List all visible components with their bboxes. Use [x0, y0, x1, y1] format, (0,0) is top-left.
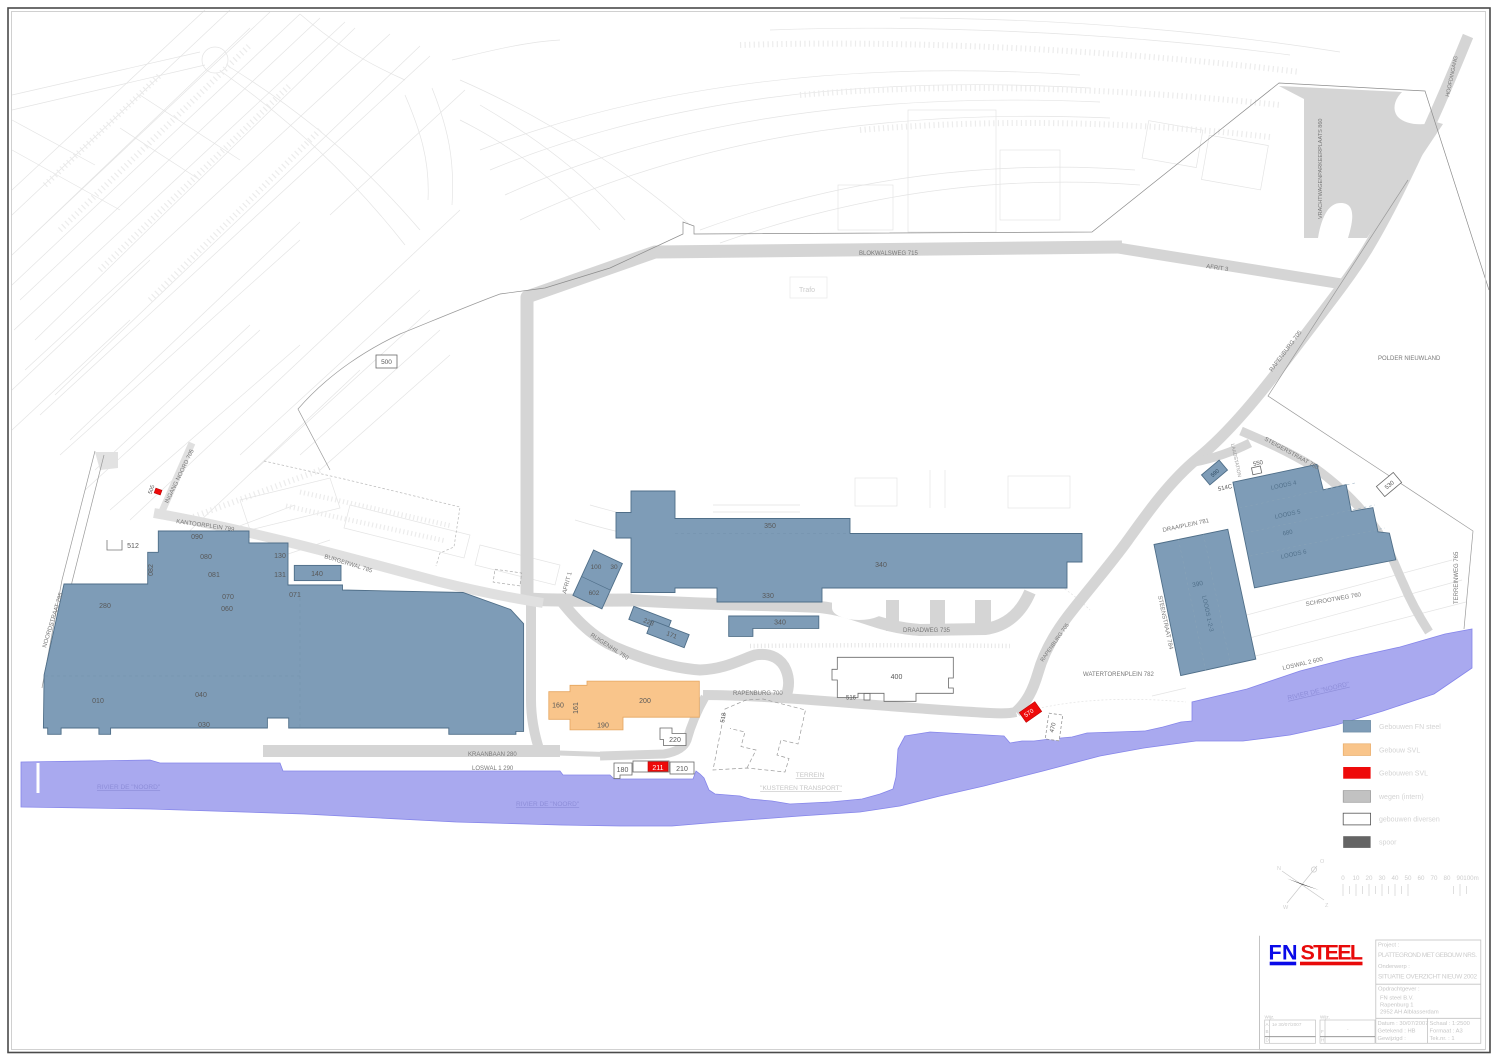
svg-text:Gebouw SVL: Gebouw SVL: [1379, 748, 1420, 755]
svg-text:RIVIER DE "NOORD": RIVIER DE "NOORD": [97, 784, 161, 791]
svg-text:W: W: [1283, 905, 1289, 911]
svg-text:Opdrachtgever :: Opdrachtgever :: [1378, 987, 1420, 993]
svg-text:Trafo: Trafo: [799, 287, 815, 294]
svg-text:FN: FN: [1269, 941, 1298, 965]
svg-text:TERREINWEG 765: TERREINWEG 765: [1454, 551, 1460, 604]
svg-text:100: 100: [591, 564, 602, 571]
svg-text:Rapenburg 1: Rapenburg 1: [1380, 1003, 1414, 1009]
svg-text:RIVIER DE "NOORD": RIVIER DE "NOORD": [516, 801, 580, 808]
svg-text:Project :: Project :: [1378, 943, 1400, 949]
svg-text:200: 200: [639, 698, 651, 705]
svg-text:512: 512: [127, 543, 139, 550]
svg-text:040: 040: [195, 692, 207, 699]
svg-text:H: H: [1321, 1038, 1324, 1043]
svg-text:10: 10: [1353, 875, 1360, 882]
svg-text:wegen (intern): wegen (intern): [1378, 794, 1424, 801]
svg-text:500: 500: [381, 359, 392, 366]
svg-text:060: 060: [221, 606, 233, 613]
svg-text:50: 50: [1405, 875, 1412, 882]
svg-text:100m: 100m: [1463, 875, 1478, 882]
svg-text:0: 0: [1341, 875, 1345, 882]
svg-text:LOSWAL 1 290: LOSWAL 1 290: [472, 766, 514, 772]
svg-text:070: 070: [222, 594, 234, 601]
svg-text:60: 60: [1418, 875, 1425, 882]
svg-text:Onderwerp :: Onderwerp :: [1378, 964, 1410, 970]
svg-text:082: 082: [148, 564, 155, 576]
svg-text:010: 010: [92, 698, 104, 705]
svg-text:210: 210: [676, 766, 688, 773]
svg-text:140: 140: [311, 571, 323, 578]
svg-text:160: 160: [552, 703, 564, 710]
svg-text:350: 350: [764, 523, 776, 530]
svg-text:081: 081: [208, 572, 220, 579]
svg-text:1e 30/07/2007: 1e 30/07/2007: [1272, 1022, 1302, 1027]
svg-text:071: 071: [289, 592, 301, 599]
svg-text:KRAANBAAN 280: KRAANBAAN 280: [468, 752, 517, 758]
svg-text:340: 340: [774, 620, 786, 627]
svg-text:400: 400: [891, 674, 903, 681]
svg-text:090: 090: [191, 534, 203, 541]
svg-text:VRACHTWAGENPARKEERPLAATS 860: VRACHTWAGENPARKEERPLAATS 860: [1318, 119, 1324, 219]
svg-text:Getekend : HB: Getekend : HB: [1378, 1029, 1416, 1035]
svg-text:516: 516: [846, 696, 857, 702]
svg-text:RAPENBURG 700: RAPENBURG 700: [733, 691, 783, 697]
svg-text:Gebouwen FN steel: Gebouwen FN steel: [1379, 724, 1441, 731]
svg-text:Schaal : 1:2500: Schaal : 1:2500: [1430, 1021, 1470, 1027]
svg-text:Wijz.: Wijz.: [1320, 1015, 1330, 1020]
svg-text:Datum : 30/07/2007: Datum : 30/07/2007: [1378, 1021, 1429, 1027]
svg-text:BLOKWALSWEG 715: BLOKWALSWEG 715: [859, 251, 918, 257]
svg-text:SITUATIE OVERZICHT NIEUW 2002: SITUATIE OVERZICHT NIEUW 2002: [1378, 974, 1477, 981]
svg-text:330: 330: [762, 593, 774, 600]
svg-text:130: 130: [274, 553, 286, 560]
svg-text:602: 602: [589, 590, 600, 597]
svg-text:TERREIN: TERREIN: [796, 772, 825, 779]
svg-text:Gewijzigd :: Gewijzigd :: [1378, 1036, 1407, 1042]
svg-text:190: 190: [597, 723, 609, 730]
svg-text:spoor: spoor: [1379, 840, 1397, 847]
svg-text:O: O: [1320, 859, 1325, 865]
svg-text:70: 70: [1431, 875, 1438, 882]
svg-text:161: 161: [573, 702, 580, 714]
svg-text:N: N: [1277, 866, 1281, 872]
svg-text:gebouwen diversen: gebouwen diversen: [1379, 817, 1440, 824]
svg-text:30: 30: [1379, 875, 1386, 882]
svg-text:131: 131: [274, 572, 286, 579]
svg-text:40: 40: [1392, 875, 1399, 882]
svg-text:30: 30: [610, 564, 618, 571]
svg-text:80: 80: [1444, 875, 1451, 882]
svg-text:080: 080: [200, 554, 212, 561]
svg-text:180: 180: [617, 767, 629, 774]
svg-text:F: F: [1321, 1029, 1324, 1034]
svg-text:030: 030: [198, 722, 210, 729]
svg-text:WATERTORENPLEIN 782: WATERTORENPLEIN 782: [1083, 672, 1154, 678]
svg-text:211: 211: [652, 765, 663, 772]
svg-text:20: 20: [1366, 875, 1373, 882]
svg-text:FN steel B.V.: FN steel B.V.: [1380, 996, 1414, 1002]
svg-text:Gebouwen SVL: Gebouwen SVL: [1379, 771, 1428, 778]
svg-text:Wijz.: Wijz.: [1265, 1015, 1275, 1020]
svg-text:340: 340: [875, 562, 887, 569]
svg-text:B: B: [1266, 1029, 1269, 1034]
svg-text:280: 280: [99, 603, 111, 610]
svg-text:DRAADWEG 735: DRAADWEG 735: [903, 628, 951, 634]
svg-text:STEEL: STEEL: [1301, 941, 1363, 965]
svg-text:"KUSTEREN TRANSPORT": "KUSTEREN TRANSPORT": [760, 785, 842, 792]
svg-text:Tek.nr. : 1: Tek.nr. : 1: [1430, 1036, 1455, 1042]
svg-text:Formaat : A3: Formaat : A3: [1430, 1029, 1463, 1035]
svg-text:2952 AH Alblasserdam: 2952 AH Alblasserdam: [1380, 1010, 1439, 1016]
svg-text:POLDER NIEUWLAND: POLDER NIEUWLAND: [1378, 356, 1441, 362]
svg-text:220: 220: [669, 737, 681, 744]
svg-text:PLATTEGROND MET GEBOUW NRS.: PLATTEGROND MET GEBOUW NRS.: [1378, 952, 1477, 959]
